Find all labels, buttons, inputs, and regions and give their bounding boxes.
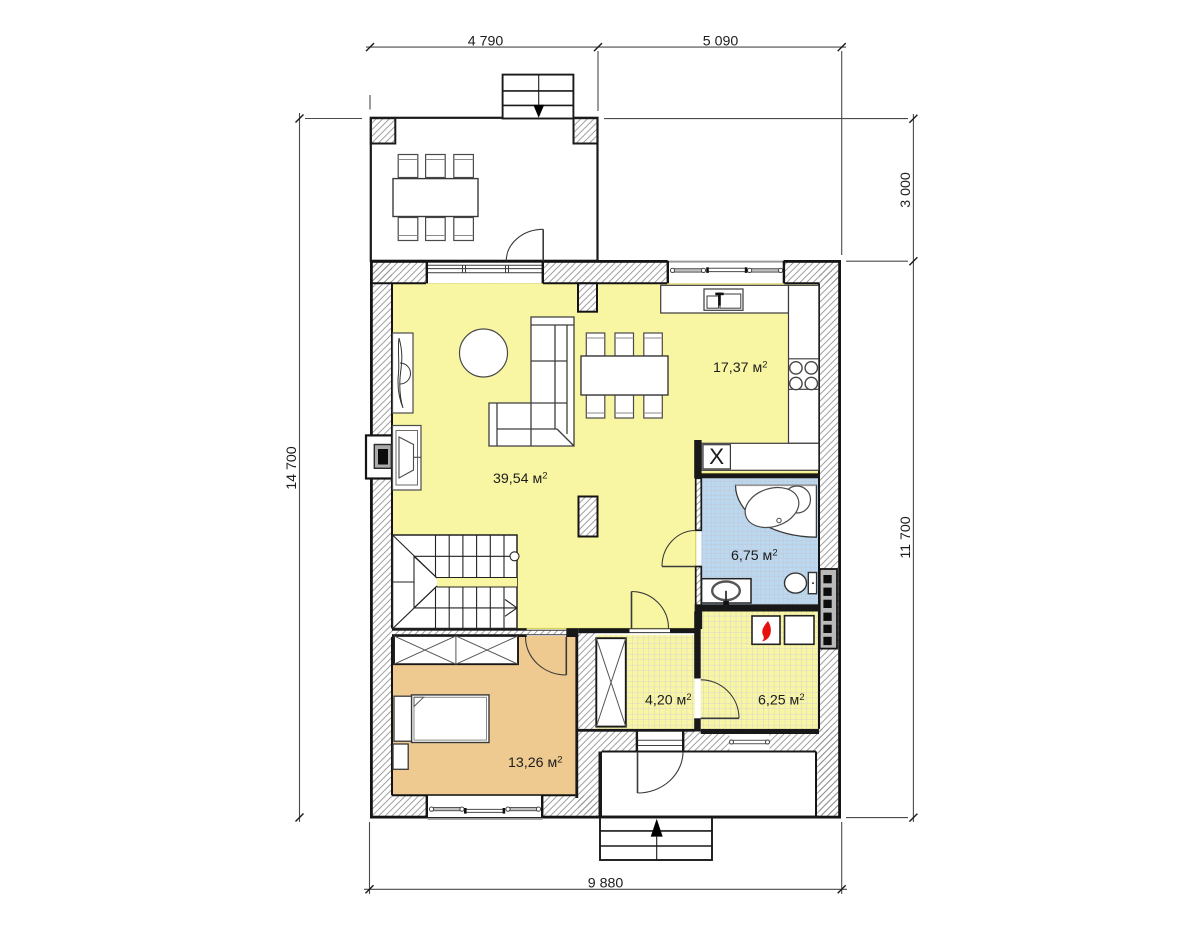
svg-text:5 090: 5 090	[703, 34, 739, 50]
svg-text:6,75 м2: 6,75 м2	[731, 548, 778, 565]
svg-text:9 880: 9 880	[588, 876, 624, 892]
svg-text:14 700: 14 700	[284, 446, 300, 490]
svg-text:6,25 м2: 6,25 м2	[758, 692, 805, 709]
svg-text:39,54 м2: 39,54 м2	[493, 471, 548, 488]
svg-text:11 700: 11 700	[898, 516, 914, 558]
svg-text:4,20 м2: 4,20 м2	[645, 692, 692, 709]
svg-text:17,37 м2: 17,37 м2	[713, 360, 768, 377]
svg-text:4 790: 4 790	[468, 34, 504, 50]
svg-text:13,26 м2: 13,26 м2	[508, 755, 563, 772]
svg-text:3 000: 3 000	[898, 172, 914, 208]
svg-text:X: X	[709, 444, 724, 469]
